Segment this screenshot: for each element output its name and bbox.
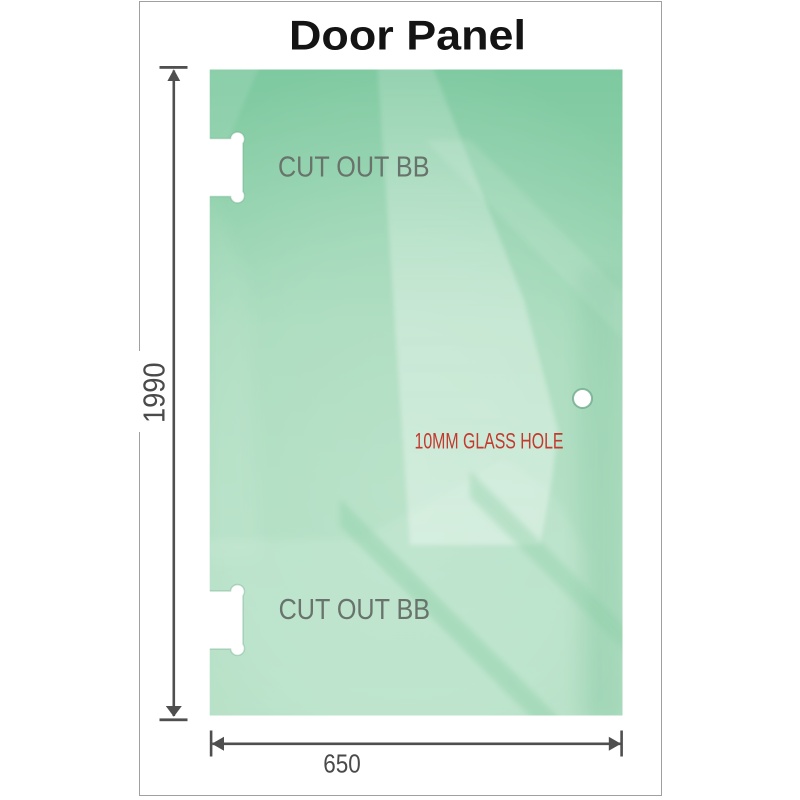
svg-text:650: 650 bbox=[323, 750, 361, 778]
svg-text:10MM GLASS HOLE: 10MM GLASS HOLE bbox=[415, 429, 564, 454]
svg-text:1990: 1990 bbox=[136, 363, 171, 424]
svg-text:Door Panel: Door Panel bbox=[289, 12, 526, 59]
svg-text:CUT OUT BB: CUT OUT BB bbox=[278, 152, 430, 184]
svg-text:CUT OUT BB: CUT OUT BB bbox=[279, 594, 431, 626]
